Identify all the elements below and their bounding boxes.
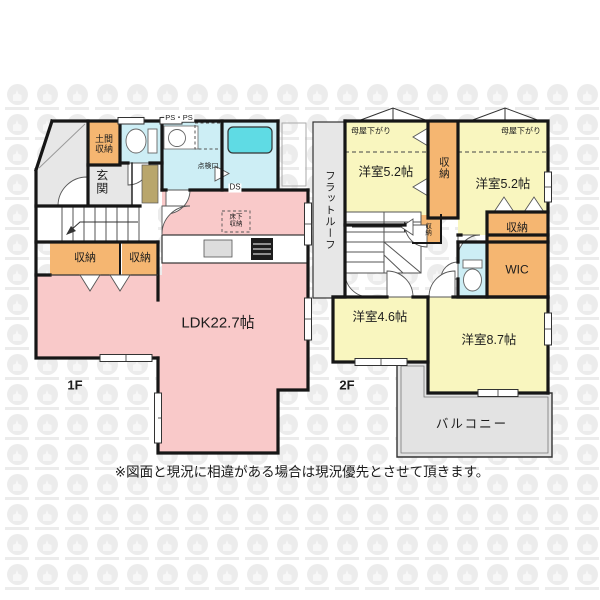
stairs-1f-area <box>36 206 158 242</box>
label-bedroom-nw: 洋室5.2帖 <box>359 165 414 179</box>
label-closet-east: 収納 <box>506 222 528 234</box>
disclaimer-text: ※図面と現況に相違がある場合は現況優先とさせて頂きます。 <box>115 464 489 479</box>
label-duct-space: DS <box>228 184 241 193</box>
label-floor2: 2F <box>339 379 354 394</box>
label-moya-sagari-left: 母屋下がり <box>351 128 391 137</box>
roof-marks-2f <box>358 108 540 121</box>
label-genkan: 玄関 <box>94 169 107 195</box>
label-balcony: バルコニー <box>436 417 508 431</box>
kitchen-counter <box>162 235 308 263</box>
fixtures-2f <box>463 260 482 291</box>
room-bedroom-sw <box>333 297 428 362</box>
floorplan-page: 土間収納 玄関 PS・PS 点検口 DS 床下収納 収納 収納 LDK22.7帖… <box>0 0 600 600</box>
label-floor1: 1F <box>67 379 82 394</box>
bathtub-icon <box>228 127 272 153</box>
label-doma-storage: 土間収納 <box>93 134 115 154</box>
sink-icon <box>204 240 232 257</box>
eaves-outline <box>282 123 306 186</box>
toilet-icon-2f <box>464 269 482 291</box>
label-inspection-port: 点検口 <box>198 163 219 171</box>
toilet-icon-1f <box>126 129 146 153</box>
label-closet-mid: 収納 <box>437 157 449 180</box>
floor1-rooms <box>36 121 308 453</box>
label-bedroom-sw: 洋室4.6帖 <box>353 310 408 324</box>
label-ldk: LDK22.7帖 <box>181 316 254 333</box>
label-pipe-space: PS・PS <box>164 114 194 122</box>
shoe-cabinet <box>142 165 158 203</box>
label-closet-stair: 収納 <box>423 223 430 236</box>
label-closet-a: 収納 <box>74 252 96 264</box>
label-underfloor-storage: 床下収納 <box>228 214 244 229</box>
label-moya-sagari-right: 母屋下がり <box>501 128 541 137</box>
label-bedroom-se: 洋室8.7帖 <box>462 333 517 347</box>
floor-plan-drawing <box>0 0 600 600</box>
label-flat-roof: フラットルーフ <box>323 170 335 251</box>
washbasin-icon <box>169 130 186 147</box>
label-wic: WIC <box>505 263 528 276</box>
label-closet-b: 収納 <box>129 252 151 264</box>
label-bedroom-ne: 洋室5.2帖 <box>476 177 531 191</box>
